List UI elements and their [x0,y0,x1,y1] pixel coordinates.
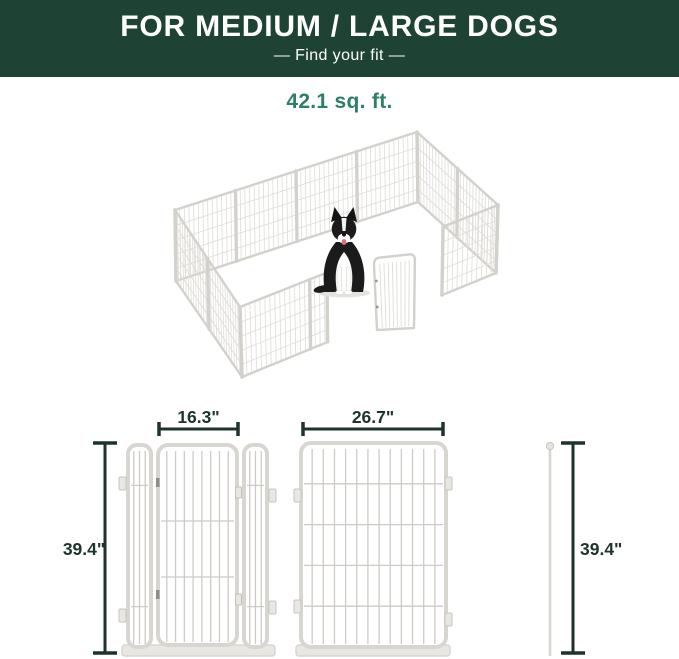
door-width-label: 16.3" [177,407,219,427]
pen-open-gate [374,254,415,330]
panel-width-label: 26.7" [352,407,394,427]
connector-rod [546,442,553,656]
playpen-infographic: FOR MEDIUM / LARGE DOGS — Find your fit … [0,0,679,659]
pen-front-wall [240,205,498,377]
door-panel-diagram [119,445,276,656]
banner-subtitle: — Find your fit — [274,47,405,65]
door-height-label: 39.4" [63,539,105,559]
panel-height-label: 39.4" [580,539,622,559]
regular-panel-diagram [294,443,452,656]
pen-left-wall [175,210,242,377]
dog-tongue [342,239,347,245]
banner: FOR MEDIUM / LARGE DOGS — Find your fit … [0,0,679,77]
area-label: 42.1 sq. ft. [0,90,679,114]
playpen-illustration [0,115,679,405]
banner-title: FOR MEDIUM / LARGE DOGS [120,12,558,42]
dimension-diagrams: 16.3" 39.4" 26.7" 39.4" [0,397,679,659]
dog-nose [342,233,346,237]
